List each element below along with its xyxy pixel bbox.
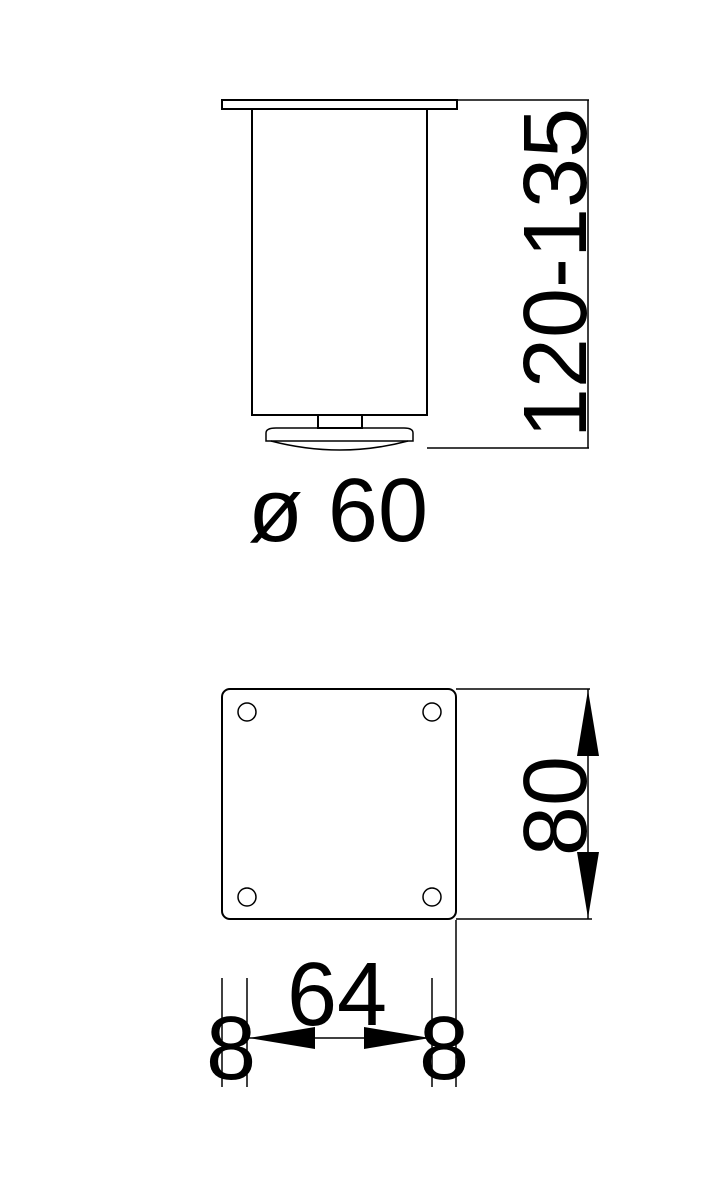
mounting-plate-side (222, 100, 457, 109)
arrowhead-up-icon (577, 690, 599, 756)
foot-glide-bottom-curve (271, 441, 408, 450)
plan-view (222, 689, 456, 919)
arrowhead-down-icon (577, 852, 599, 918)
diameter-dimension-label: ø 60 (248, 461, 428, 561)
hole-spacing-dimension: 64 8 8 (206, 920, 469, 1099)
leg-column (252, 109, 427, 415)
drawing-sheet: 120-135 ø 60 80 (0, 0, 714, 1192)
height-dimension: 120-135 (427, 100, 606, 448)
screw-hole-top-left (238, 703, 256, 721)
right-edge-offset-label: 8 (419, 999, 469, 1099)
plate-width-dimension: 80 (456, 689, 606, 919)
plate-width-label: 80 (506, 756, 606, 856)
screw-hole-bottom-left (238, 888, 256, 906)
foot-stem (318, 415, 362, 428)
side-view (222, 100, 457, 450)
height-dimension-label: 120-135 (506, 108, 606, 438)
foot-glide (266, 428, 413, 441)
mounting-plate-plan (222, 689, 456, 919)
technical-drawing: 120-135 ø 60 80 (0, 0, 714, 1192)
left-edge-offset-label: 8 (206, 999, 256, 1099)
screw-hole-bottom-right (423, 888, 441, 906)
screw-hole-top-right (423, 703, 441, 721)
hole-spacing-label: 64 (287, 945, 387, 1045)
